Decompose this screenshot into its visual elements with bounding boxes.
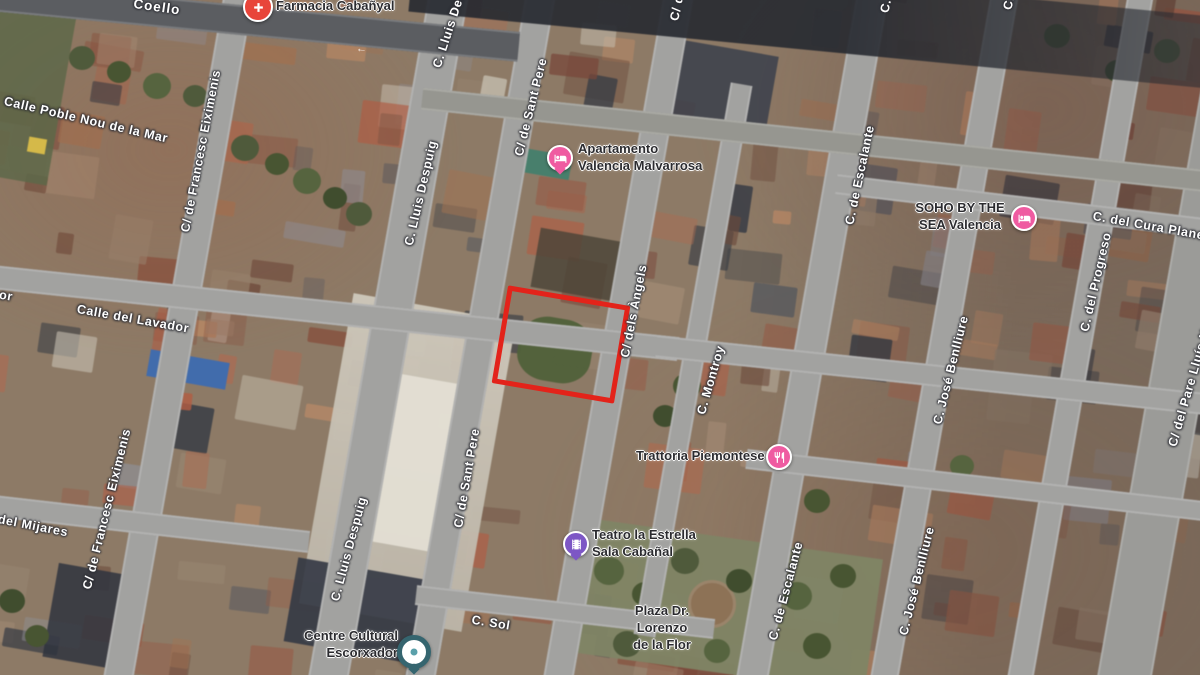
maps-satellite-view: { "map": { "surface": "satellite-aerial-…	[0, 0, 1200, 675]
map-canvas[interactable]: ← Coello Calle Poble Nou de la Mar C/ de…	[0, 0, 1200, 675]
poi-label-line: SEA Valencia	[915, 217, 1004, 234]
road-arrow: ←	[356, 44, 368, 56]
lodging-icon-apartamento[interactable]	[547, 145, 573, 171]
poi-label-line: SOHO BY THE	[915, 200, 1004, 217]
poi-label-plaza-lorenzo[interactable]: Plaza Dr. Lorenzo de la Flor	[633, 603, 691, 654]
poi-label-line: Valencia Malvarrosa	[578, 158, 702, 175]
poi-label-trattoria[interactable]: Trattoria Piemontese	[636, 448, 765, 465]
street-label-lavador-partial: or	[0, 289, 14, 304]
poi-label-line: Plaza Dr.	[633, 603, 691, 620]
poi-label-centre-cultural[interactable]: Centre Cultural Escorxador	[240, 628, 398, 662]
yellow-feature	[27, 137, 47, 155]
street-label-escalante-partial-1: C.	[878, 0, 893, 14]
highlighted-plot-outline[interactable]	[492, 285, 631, 403]
poi-label-teatro[interactable]: Teatro la Estrella Sala Cabañal	[592, 527, 696, 561]
poi-label-farmacia[interactable]: Farmacia Cabañyal	[276, 0, 395, 15]
poi-label-line: de la Flor	[633, 637, 691, 654]
poi-label-line: Sala Cabañal	[592, 544, 696, 561]
poi-label-line: Apartamento	[578, 141, 702, 158]
lodging-icon-soho[interactable]	[1011, 205, 1037, 231]
poi-label-line: Centre Cultural	[240, 628, 398, 645]
theater-icon-teatro[interactable]	[563, 531, 589, 557]
poi-label-line: Teatro la Estrella	[592, 527, 696, 544]
poi-label-soho[interactable]: SOHO BY THE SEA Valencia	[915, 200, 1004, 234]
attraction-icon-centre-cultural[interactable]	[397, 635, 431, 669]
poi-label-apartamento[interactable]: Apartamento Valencia Malvarrosa	[578, 141, 702, 175]
poi-label-line: Lorenzo	[633, 620, 691, 637]
restaurant-icon-trattoria[interactable]	[766, 444, 792, 470]
poi-label-line: Escorxador	[240, 645, 398, 662]
